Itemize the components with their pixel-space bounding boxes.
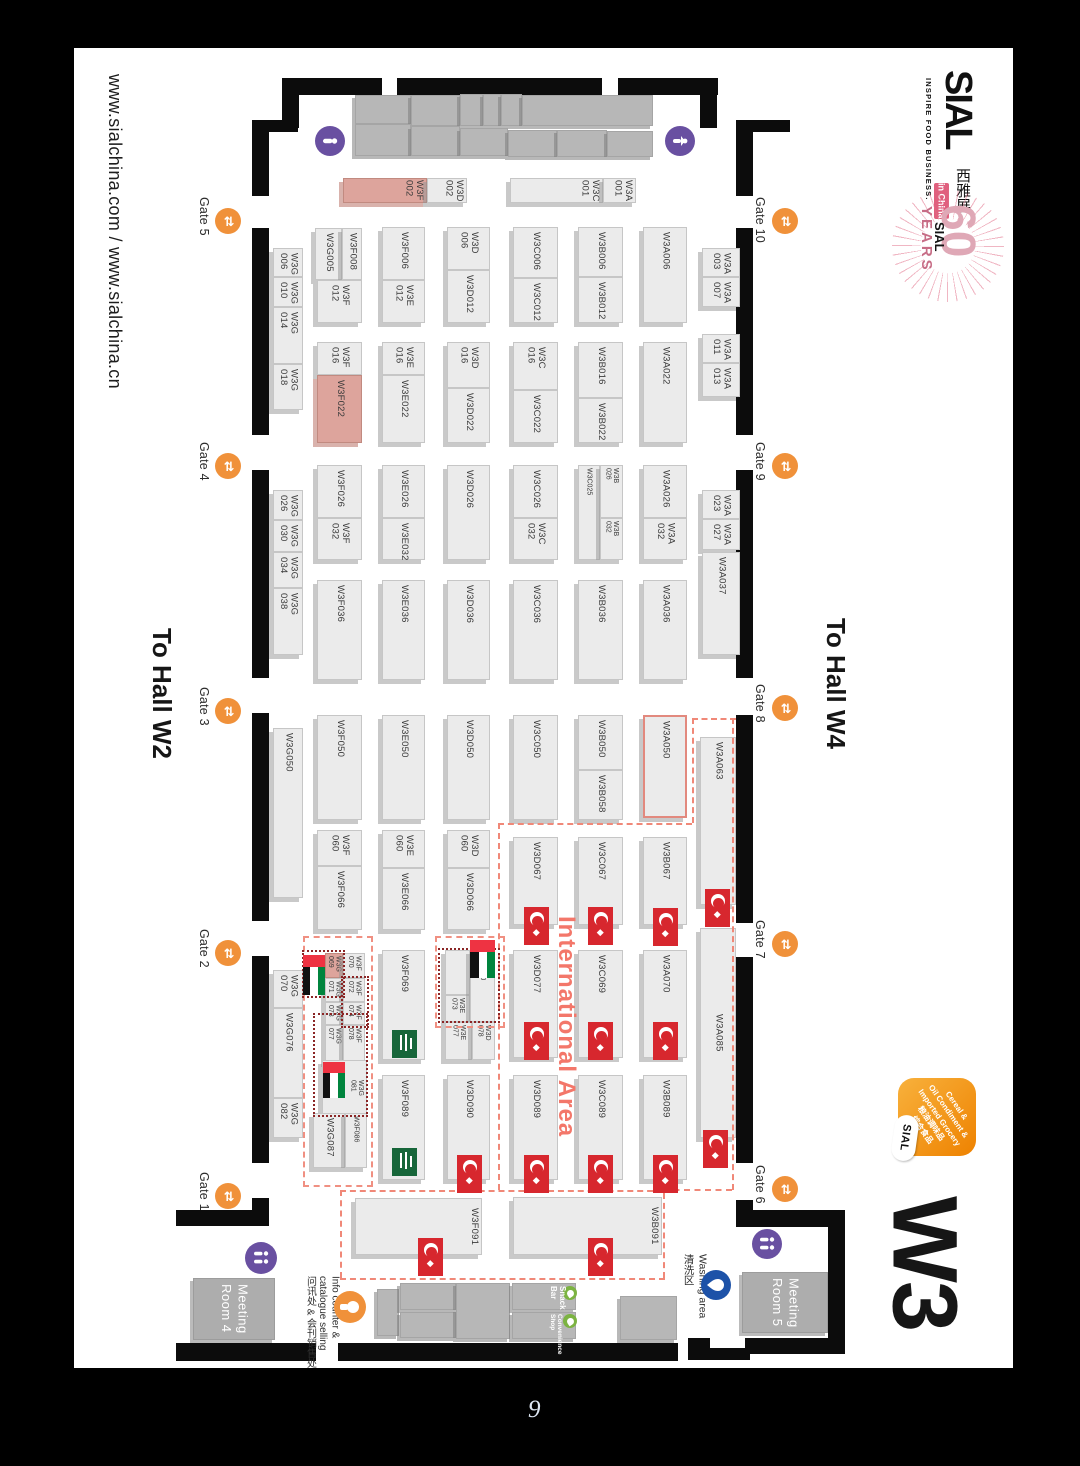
wall-segment [252, 956, 269, 1163]
booth-W3A036: W3A036 [643, 580, 687, 680]
booth-label: W3G 018 [277, 365, 298, 391]
booth-W3F008: W3F008 [342, 228, 362, 280]
wall-segment [745, 1338, 845, 1354]
meeting-room-5: Meeting Room 5 [742, 1272, 828, 1333]
booth-label: W3G 034 [277, 553, 298, 579]
wall-segment [176, 1343, 316, 1361]
booth-label: W3F069 [398, 951, 409, 992]
booth-label: W3C026 [530, 466, 541, 508]
page-number: 9 [528, 1396, 541, 1424]
service-block [501, 94, 522, 126]
booth-W3D050: W3D050 [447, 715, 490, 820]
booth-label: W3D 002 [443, 180, 466, 202]
booth-label: W3B091 [648, 1207, 661, 1245]
service-block [355, 124, 411, 156]
booth-label: W3G 014 [277, 308, 298, 334]
booth-label: W3B012 [595, 278, 606, 320]
booth-label: W3E026 [398, 466, 409, 508]
booth-W3F016: W3F 016 [317, 342, 362, 375]
uae-flag [470, 940, 495, 978]
booth-W3G006: W3G 006 [273, 248, 303, 277]
gate-icon: ⇄ [772, 1176, 798, 1202]
booth-label: W3E 016 [393, 343, 414, 368]
booth-label: W3D089 [530, 1076, 541, 1118]
booth-W3B032: W3B 032 [600, 518, 623, 560]
international-area-boundary [340, 1190, 663, 1192]
category-badge: Cereal & Oil Condiment & Imported Grocer… [898, 1078, 976, 1156]
gate-label-gate-5: Gate 5 [197, 197, 211, 236]
booth-W3C050: W3C050 [513, 715, 558, 820]
booth-label: W3G 010 [277, 278, 298, 304]
service-block [377, 1289, 399, 1336]
booth-W3A032: W3A 032 [643, 518, 687, 560]
gate-icon: ⇄ [772, 453, 798, 479]
service-block [522, 95, 653, 126]
booth-label: W3D066 [463, 869, 474, 911]
gate-icon: ⇄ [772, 208, 798, 234]
booth-label: W3E036 [398, 581, 409, 623]
booth-label: W3E066 [398, 869, 409, 911]
service-block [411, 126, 460, 156]
turkey-flag [653, 1155, 678, 1193]
booth-label: W3A070 [660, 951, 671, 993]
gate-icon: ⇄ [215, 453, 241, 479]
sial-tagline: INSPIRE FOOD BUSINESS. [924, 78, 933, 201]
booth-W3F032: W3F 032 [317, 518, 362, 560]
booth-label: W3G050 [283, 729, 294, 772]
wall-segment [688, 1348, 750, 1360]
booth-W3B006: W3B006 [578, 227, 623, 277]
booth-label: W3B036 [595, 581, 606, 623]
uae-flag [323, 1062, 345, 1098]
saudi-flag [392, 1148, 417, 1176]
booth-label: W3A085 [713, 1014, 724, 1052]
gate-icon: ⇄ [215, 940, 241, 966]
wall-segment [338, 1343, 678, 1361]
booth-W3C032: W3C 032 [513, 518, 558, 560]
booth-label: W3B050 [595, 716, 606, 758]
turkey-flag [524, 1155, 549, 1193]
wall-segment [700, 78, 717, 128]
turkey-flag [705, 889, 730, 927]
booth-label: W3G005 [323, 229, 334, 272]
booth-label: W3B 032 [604, 519, 619, 536]
wall-segment [252, 713, 269, 921]
booth-W3D012: W3D012 [447, 270, 490, 323]
gate-icon: ⇄ [215, 1183, 241, 1209]
booth-W3E012: W3E 012 [382, 280, 425, 323]
service-block [355, 95, 411, 124]
booth-label: W3A 011 [710, 335, 731, 360]
booth-label: W3F008 [347, 229, 358, 270]
booth-label: W3A 032 [654, 519, 675, 544]
booth-label: W3F026 [334, 466, 345, 507]
booth-label: W3D050 [463, 716, 474, 758]
booth-W3E016: W3E 016 [382, 342, 425, 375]
hall-w3-label: W3 [886, 1196, 961, 1330]
booth-label: W3A 027 [710, 520, 731, 545]
booth-label: W3B089 [660, 1076, 671, 1118]
booth-label: W3A 023 [710, 491, 731, 516]
meeting-room-4: Meeting Room 4 [193, 1278, 275, 1340]
booth-label: W3B067 [660, 838, 671, 880]
booth-label: W3F036 [334, 581, 345, 622]
turkey-flag [524, 907, 549, 945]
wall-segment [252, 228, 269, 435]
booth-label: W3A063 [713, 738, 724, 780]
booth-label: W3D022 [463, 389, 474, 431]
international-area-boundary [692, 718, 736, 720]
booth-label: W3A037 [716, 553, 727, 595]
booth-label: W3G 038 [277, 589, 298, 615]
turkey-flag [653, 1022, 678, 1060]
wall-segment [252, 120, 269, 196]
booth-label: W3A022 [660, 343, 671, 385]
booth-W3D036: W3D036 [447, 580, 490, 680]
info-bulb-icon [334, 1291, 366, 1323]
booth-W3D060: W3D 060 [447, 830, 490, 868]
booth-label: W3F 016 [329, 343, 350, 368]
booth-label: W3C050 [530, 716, 541, 758]
booth-W3E022: W3E022 [382, 375, 425, 443]
booth-label: W3C036 [530, 581, 541, 623]
international-area-label: International Area [552, 916, 580, 1137]
booth-label: W3C089 [595, 1076, 606, 1118]
gate-label-gate-4: Gate 4 [197, 442, 211, 481]
booth-W3B016: W3B016 [578, 342, 623, 398]
booth-W3F050: W3F050 [317, 715, 362, 820]
booth-label: W3C067 [595, 838, 606, 880]
gate-icon: ⇄ [215, 208, 241, 234]
service-block [557, 130, 607, 157]
turkey-flag [653, 908, 678, 946]
booth-label: W3E022 [398, 376, 409, 418]
booth-W3B058: W3B058 [578, 770, 623, 820]
booth-W3A011: W3A 011 [702, 334, 740, 363]
turkey-flag [418, 1238, 443, 1276]
booth-label: W3G 030 [277, 521, 298, 547]
booth-W3B026: W3B 026 [600, 465, 623, 518]
booth-label: W3G 026 [277, 491, 298, 517]
booth-W3A022: W3A022 [643, 342, 687, 443]
booth-W3G034: W3G 034 [273, 552, 303, 588]
turkey-flag [588, 1238, 613, 1276]
booth-label: W3C012 [530, 279, 541, 321]
meeting-room-4-label: Meeting Room 4 [218, 1284, 251, 1334]
booth-label: W3F091 [468, 1208, 481, 1245]
convenience-shop-label: Convenience Shop [549, 1314, 563, 1354]
booth-label: W3B 026 [604, 466, 619, 483]
gate-label-gate-2: Gate 2 [197, 929, 211, 968]
booth-W3F012: W3F 012 [317, 280, 362, 323]
booth-label: W3G076 [283, 1009, 294, 1052]
booth-W3E060: W3E 060 [382, 830, 425, 868]
international-area-boundary [663, 1193, 665, 1278]
booth-W3C001: W3C 001 [510, 178, 603, 203]
booth-W3C006: W3C006 [513, 227, 558, 278]
booth-label: W3B022 [595, 399, 606, 441]
saudi-flag [392, 1030, 417, 1058]
gate-label-gate-10: Gate 10 [753, 197, 767, 243]
booth-W3E036: W3E036 [382, 580, 425, 680]
booth-W3A007: W3A 007 [702, 277, 740, 307]
meeting-room-5-label: Meeting Room 5 [769, 1278, 802, 1328]
booth-W3A006: W3A006 [643, 227, 687, 323]
service-block [620, 1296, 677, 1340]
gate-label-gate-8: Gate 8 [753, 684, 767, 723]
gate-label-gate-6: Gate 6 [753, 1165, 767, 1204]
booth-W3D006: W3D 006 [447, 227, 490, 270]
facility-people-icon [245, 1242, 277, 1274]
gate-label-gate-3: Gate 3 [197, 687, 211, 726]
booth-W3A027: W3A 027 [702, 519, 740, 550]
snack-bar-label: Snack Bar [549, 1286, 567, 1310]
wall-segment [176, 1210, 269, 1226]
booth-W3G018: W3G 018 [273, 364, 303, 410]
facility-person-icon [315, 126, 345, 156]
amenity-leaf-icon [563, 1314, 577, 1328]
booth-label: W3A 007 [710, 278, 731, 303]
booth-W3C012: W3C012 [513, 278, 558, 323]
booth-W3F036: W3F036 [317, 580, 362, 680]
booth-label: W3C 032 [525, 519, 546, 545]
catalogue-page: W3F 002W3D 002W3C 001W3A 001W3G 006W3G 0… [0, 0, 1080, 1466]
booth-label: W3C025 [585, 466, 592, 495]
gate-label-gate-9: Gate 9 [753, 442, 767, 481]
booth-label: W3C 001 [579, 180, 602, 202]
wall-segment [736, 120, 753, 196]
service-block [483, 94, 501, 126]
booth-label: W3D067 [530, 838, 541, 880]
booth-label: W3A026 [660, 466, 671, 508]
booth-W3D022: W3D022 [447, 388, 490, 443]
uae-flag [303, 955, 325, 995]
booth-W3G026: W3G 026 [273, 490, 303, 520]
booth-W3G082: W3G 082 [273, 1098, 303, 1138]
wall-segment [252, 470, 269, 678]
booth-W3E026: W3E026 [382, 465, 425, 518]
booth-label: W3D090 [463, 1076, 474, 1118]
international-area-boundary [498, 823, 692, 825]
booth-W3C022: W3C022 [513, 390, 558, 443]
booth-W3A026: W3A026 [643, 465, 687, 518]
booth-label: W3A006 [660, 228, 671, 270]
service-block [400, 1312, 456, 1338]
booth-label: W3C006 [530, 228, 541, 270]
booth-W3G076: W3G076 [273, 1008, 303, 1098]
booth-label: W3G 070 [277, 971, 298, 997]
booth-W3G038: W3G 038 [273, 588, 303, 655]
booth-label: W3F 060 [329, 831, 350, 856]
booth-label: W3B016 [595, 343, 606, 385]
booth-W3C016: W3C 016 [513, 342, 558, 390]
booth-W3C025: W3C025 [578, 465, 600, 560]
turkey-flag [588, 907, 613, 945]
service-block [460, 94, 483, 126]
service-block [607, 131, 653, 157]
booth-W3B050: W3B050 [578, 715, 623, 770]
booth-W3A050: W3A050 [643, 715, 687, 818]
booth-W3F022: W3F022 [317, 375, 362, 443]
booth-label: W3F089 [398, 1076, 409, 1117]
booth-label: W3G 082 [277, 1099, 298, 1125]
wall-segment [736, 715, 753, 923]
booth-label: W3D 016 [458, 343, 479, 369]
booth-label: W3C069 [595, 951, 606, 993]
booth-label: W3E 060 [393, 831, 414, 856]
booth-W3A085: W3A085 [700, 928, 736, 1138]
booth-W3B022: W3B022 [578, 398, 623, 443]
booth-label: W3D036 [463, 581, 474, 623]
international-area-boundary [340, 1190, 342, 1278]
booth-W3A013: W3A 013 [702, 363, 740, 397]
wall-segment [397, 78, 602, 95]
booth-W3D066: W3D066 [447, 868, 490, 930]
sixty-years-sial: SIAL [932, 222, 947, 252]
booth-label: W3E 012 [393, 281, 414, 306]
booth-W3G005: W3G005 [315, 228, 342, 280]
booth-label: W3D077 [530, 951, 541, 993]
booth-label: W3F022 [334, 376, 345, 417]
booth-label: W3F 002 [403, 180, 426, 201]
booth-label: W3F066 [334, 867, 345, 908]
to-hall-w2-label: To Hall W2 [146, 628, 177, 759]
turkey-flag [703, 1130, 728, 1168]
booth-label: W3A036 [660, 581, 671, 623]
booth-label: W3F 012 [329, 281, 350, 306]
booth-W3D026: W3D026 [447, 465, 490, 560]
booth-label: W3D 006 [458, 228, 479, 254]
booth-label: W3F 032 [329, 519, 350, 544]
international-area-boundary [340, 1278, 665, 1280]
booth-label: W3B006 [595, 228, 606, 270]
booth-W3G030: W3G 030 [273, 520, 303, 552]
turkey-flag [524, 1022, 549, 1060]
service-block [411, 95, 460, 126]
gate-label-gate-7: Gate 7 [753, 920, 767, 959]
facility-person-arrow-icon [665, 126, 695, 156]
gate-icon: ⇄ [215, 698, 241, 724]
booth-label: W3G 006 [277, 249, 298, 275]
facility-people-icon [752, 1229, 782, 1259]
to-hall-w4-label: To Hall W4 [820, 618, 851, 749]
booth-W3G050: W3G050 [273, 728, 303, 898]
booth-label: W3C 016 [525, 343, 546, 369]
booth-label: W3A050 [660, 717, 671, 759]
booth-label: W3C022 [530, 391, 541, 433]
booth-label: W3D012 [463, 271, 474, 313]
booth-W3E050: W3E050 [382, 715, 425, 820]
turkey-flag [588, 1022, 613, 1060]
booth-W3B036: W3B036 [578, 580, 623, 680]
booth-label: W3D026 [463, 466, 474, 508]
booth-label: W3E032 [398, 519, 409, 561]
service-block [508, 130, 557, 157]
booth-W3G014: W3G 014 [273, 307, 303, 364]
gate-icon: ⇄ [772, 695, 798, 721]
washing-area-icon [701, 1270, 731, 1300]
booth-W3F026: W3F026 [317, 465, 362, 518]
booth-W3F006: W3F006 [382, 227, 425, 280]
booth-W3A001: W3A 001 [603, 178, 636, 203]
booth-W3A037: W3A037 [702, 552, 740, 655]
booth-W3C026: W3C026 [513, 465, 558, 518]
turkey-flag [457, 1155, 482, 1193]
booth-label: W3F050 [334, 716, 345, 757]
turkey-flag [588, 1155, 613, 1193]
booth-W3E032: W3E032 [382, 518, 425, 560]
booth-label: W3F006 [398, 228, 409, 269]
booth-W3A023: W3A 023 [702, 490, 740, 519]
wall-segment [828, 1210, 845, 1354]
booth-label: W3B058 [595, 771, 606, 813]
booth-W3D002: W3D 002 [427, 178, 467, 203]
booth-W3F066: W3F066 [317, 866, 362, 930]
wall-segment [736, 957, 753, 1163]
international-area-boundary [692, 718, 694, 823]
gate-icon: ⇄ [772, 931, 798, 957]
booth-W3F002: W3F 002 [343, 178, 427, 203]
booth-label: W3E050 [398, 716, 409, 758]
booth-W3G010: W3G 010 [273, 277, 303, 307]
international-area-boundary [732, 718, 734, 1190]
booth-W3C036: W3C036 [513, 580, 558, 680]
booth-W3E066: W3E066 [382, 868, 425, 930]
booth-label: W3D 060 [458, 831, 479, 857]
booth-W3F060: W3F 060 [317, 830, 362, 866]
website-url: www.sialchina.com / www.sialchina.cn [104, 74, 125, 389]
booth-W3B012: W3B012 [578, 277, 623, 323]
booth-W3D016: W3D 016 [447, 342, 490, 388]
booth-W3A003: W3A 003 [702, 248, 740, 277]
booth-W3A063: W3A063 [700, 737, 736, 905]
booth-label: W3A 003 [710, 249, 731, 274]
booth-label: W3A 001 [612, 180, 635, 201]
gate-label-gate-1: Gate 1 [197, 1172, 211, 1211]
service-block [456, 1283, 510, 1339]
service-block [460, 128, 508, 156]
service-block [400, 1283, 456, 1310]
booth-label: W3A 013 [710, 364, 731, 389]
sial-logo: SIAL [936, 70, 979, 149]
booth-W3G070: W3G 070 [273, 970, 303, 1008]
